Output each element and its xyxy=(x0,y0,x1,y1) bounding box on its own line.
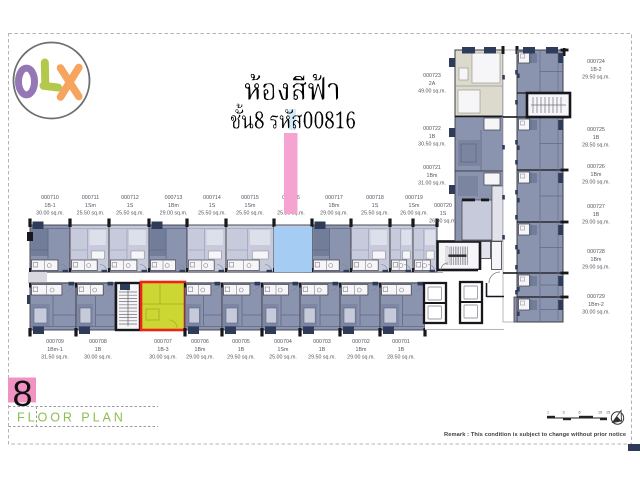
svg-text:2A: 2A xyxy=(429,81,436,87)
svg-text:000712: 000712 xyxy=(121,195,139,201)
svg-text:000701: 000701 xyxy=(392,339,410,345)
svg-text:1Bm: 1Bm xyxy=(329,203,340,209)
svg-text:000709: 000709 xyxy=(46,339,64,345)
svg-text:8: 8 xyxy=(12,373,32,414)
svg-text:1Bm: 1Bm xyxy=(427,173,438,179)
svg-text:1Bm: 1Bm xyxy=(591,257,602,263)
svg-text:1B: 1B xyxy=(238,347,245,353)
svg-text:3: 3 xyxy=(563,411,565,415)
svg-text:000726: 000726 xyxy=(587,164,605,170)
svg-text:29.00 sq.m.: 29.00 sq.m. xyxy=(186,355,214,361)
svg-text:30.00 sq.m.: 30.00 sq.m. xyxy=(582,310,610,316)
svg-text:000718: 000718 xyxy=(366,195,384,201)
svg-text:1B: 1B xyxy=(593,212,600,218)
svg-text:000702: 000702 xyxy=(352,339,370,345)
svg-text:1B: 1B xyxy=(319,347,326,353)
svg-text:000725: 000725 xyxy=(587,127,605,133)
svg-text:1Bm-2: 1Bm-2 xyxy=(588,302,604,308)
svg-text:29.00 sq.m.: 29.00 sq.m. xyxy=(160,211,188,217)
svg-text:1B: 1B xyxy=(95,347,102,353)
svg-text:29.50 sq.m.: 29.50 sq.m. xyxy=(308,355,336,361)
svg-text:1B-1: 1B-1 xyxy=(44,203,55,209)
svg-text:000722: 000722 xyxy=(423,126,441,132)
svg-text:1Bm: 1Bm xyxy=(591,172,602,178)
svg-text:000704: 000704 xyxy=(274,339,292,345)
svg-text:15: 15 xyxy=(606,411,610,415)
svg-text:000723: 000723 xyxy=(423,73,441,79)
svg-text:000711: 000711 xyxy=(82,195,99,201)
svg-text:000713: 000713 xyxy=(165,195,183,201)
svg-text:000719: 000719 xyxy=(405,195,423,201)
svg-text:1S: 1S xyxy=(440,211,447,217)
svg-text:6: 6 xyxy=(579,411,581,415)
svg-text:31.00 sq.m.: 31.00 sq.m. xyxy=(418,181,446,187)
svg-text:29.00 sq.m.: 29.00 sq.m. xyxy=(582,180,610,186)
svg-text:29.50 sq.m.: 29.50 sq.m. xyxy=(227,355,255,361)
svg-text:FLOOR PLAN: FLOOR PLAN xyxy=(17,411,126,425)
svg-text:1Sm: 1Sm xyxy=(245,203,256,209)
svg-text:25.50 sq.m.: 25.50 sq.m. xyxy=(116,211,144,217)
svg-text:25.00 sq.m.: 25.00 sq.m. xyxy=(269,355,297,361)
svg-text:1B: 1B xyxy=(429,134,436,140)
svg-text:000724: 000724 xyxy=(587,59,605,65)
svg-text:29.50 sq.m.: 29.50 sq.m. xyxy=(582,75,610,81)
svg-text:25.50 sq.m.: 25.50 sq.m. xyxy=(236,211,264,217)
svg-text:000703: 000703 xyxy=(313,339,331,345)
svg-text:1Sm: 1Sm xyxy=(85,203,96,209)
svg-text:25.50 sq.m.: 25.50 sq.m. xyxy=(198,211,226,217)
svg-text:000727: 000727 xyxy=(587,204,605,210)
svg-text:1S: 1S xyxy=(209,203,216,209)
svg-text:1Sm: 1Sm xyxy=(409,203,420,209)
svg-text:000707: 000707 xyxy=(154,339,172,345)
svg-text:26.00 sq.m.: 26.00 sq.m. xyxy=(400,211,428,217)
svg-text:1B-2: 1B-2 xyxy=(590,67,601,73)
svg-text:29.00 sq.m.: 29.00 sq.m. xyxy=(582,220,610,226)
svg-text:30.50 sq.m.: 30.50 sq.m. xyxy=(418,142,446,148)
svg-text:1S: 1S xyxy=(372,203,379,209)
svg-text:1B-3: 1B-3 xyxy=(157,347,168,353)
svg-text:49.00 sq.m.: 49.00 sq.m. xyxy=(418,89,446,95)
svg-text:000720: 000720 xyxy=(434,203,452,209)
svg-text:000728: 000728 xyxy=(587,249,605,255)
svg-text:1Sm: 1Sm xyxy=(278,347,289,353)
svg-text:000729: 000729 xyxy=(587,294,605,300)
svg-text:1B: 1B xyxy=(593,135,600,141)
svg-text:29.00 sq.m.: 29.00 sq.m. xyxy=(347,355,375,361)
svg-text:1Bm: 1Bm xyxy=(356,347,367,353)
svg-text:10: 10 xyxy=(598,411,602,415)
svg-text:1Bm: 1Bm xyxy=(195,347,206,353)
svg-text:1: 1 xyxy=(547,411,549,415)
svg-text:000710: 000710 xyxy=(41,195,59,201)
svg-text:31.50 sq.m.: 31.50 sq.m. xyxy=(41,355,69,361)
svg-text:000715: 000715 xyxy=(241,195,259,201)
svg-text:000714: 000714 xyxy=(203,195,221,201)
svg-text:000706: 000706 xyxy=(191,339,209,345)
svg-text:000717: 000717 xyxy=(325,195,343,201)
svg-text:1S: 1S xyxy=(127,203,134,209)
svg-text:30.00 sq.m.: 30.00 sq.m. xyxy=(84,355,112,361)
svg-text:000705: 000705 xyxy=(232,339,250,345)
svg-text:30.00 sq.m.: 30.00 sq.m. xyxy=(149,355,177,361)
svg-text:1Bm: 1Bm xyxy=(168,203,179,209)
svg-text:26.00 sq.m.: 26.00 sq.m. xyxy=(429,219,457,225)
svg-text:28.50 sq.m.: 28.50 sq.m. xyxy=(582,143,610,149)
svg-text:1B: 1B xyxy=(398,347,405,353)
svg-text:25.50 sq.m.: 25.50 sq.m. xyxy=(361,211,389,217)
svg-text:28.50 sq.m.: 28.50 sq.m. xyxy=(387,355,415,361)
svg-text:000721: 000721 xyxy=(423,165,441,171)
svg-text:1Bm-1: 1Bm-1 xyxy=(47,347,63,353)
svg-text:25.50 sq.m.: 25.50 sq.m. xyxy=(77,211,105,217)
svg-text:29.00 sq.m.: 29.00 sq.m. xyxy=(582,265,610,271)
svg-text:000708: 000708 xyxy=(89,339,107,345)
svg-text:Remark : This condition is sub: Remark : This condition is subject to ch… xyxy=(444,432,626,438)
svg-text:29.00 sq.m.: 29.00 sq.m. xyxy=(320,211,348,217)
svg-text:30.00 sq.m.: 30.00 sq.m. xyxy=(36,211,64,217)
